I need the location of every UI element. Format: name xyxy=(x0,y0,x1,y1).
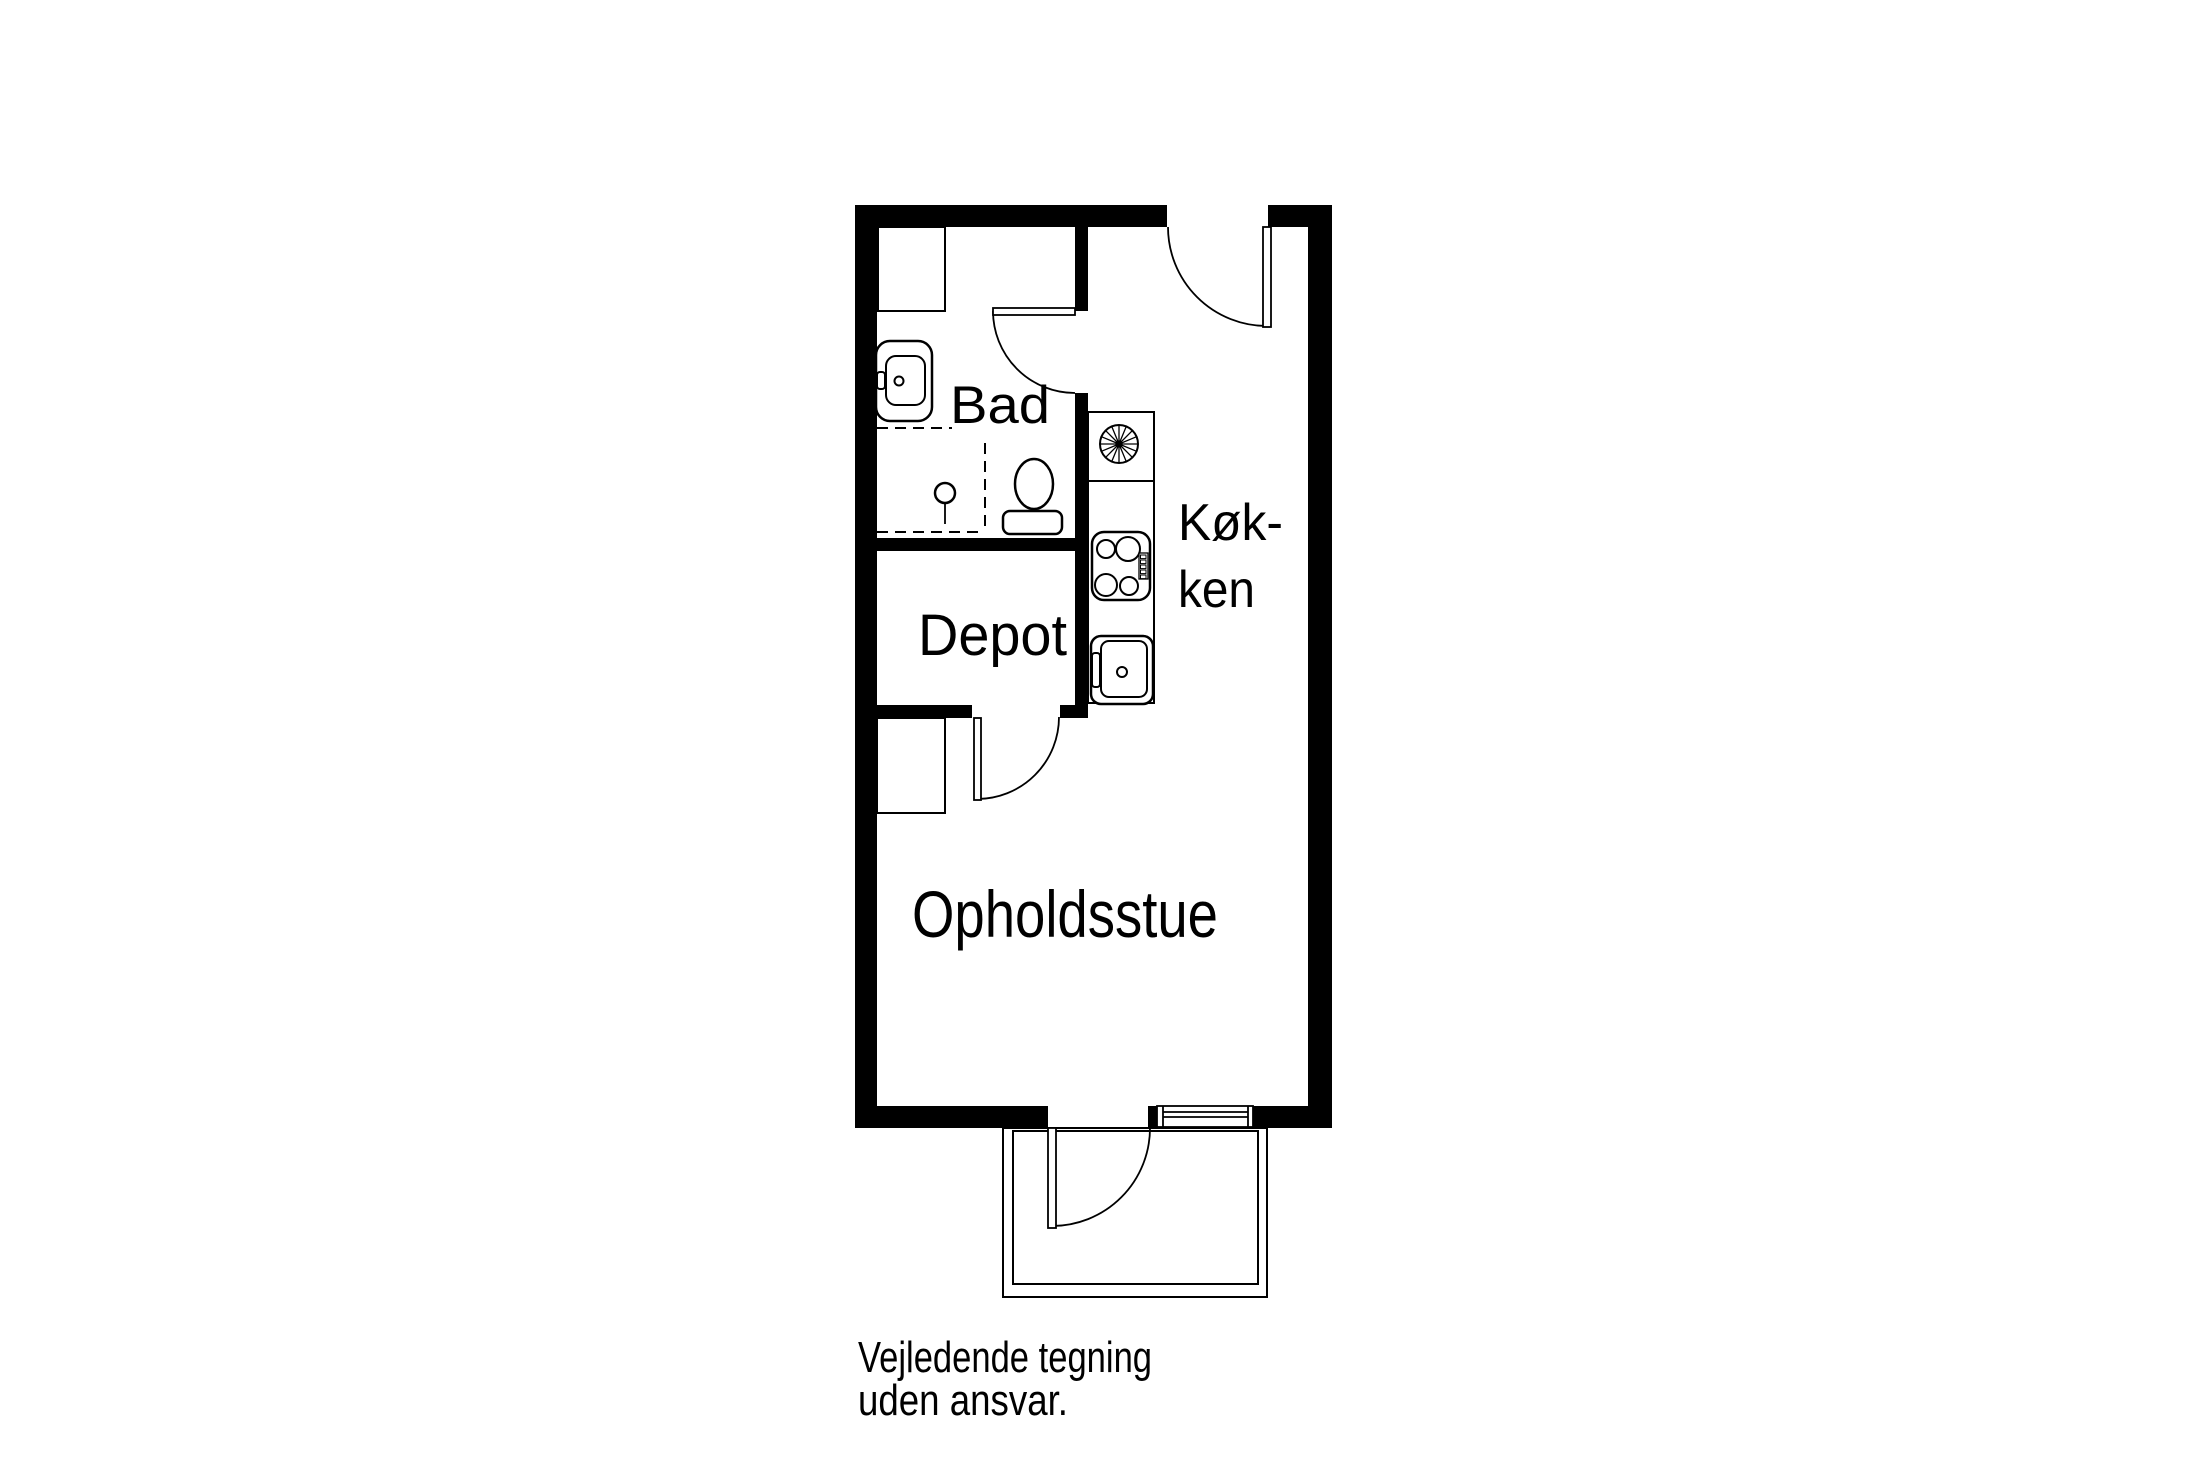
cooktop-knobs xyxy=(1141,555,1147,579)
bottom-wall-left-segment xyxy=(855,1106,1048,1128)
porch-door-swing-arc xyxy=(1052,1128,1150,1226)
bathroom-sink-drain xyxy=(895,377,904,386)
bathroom-bottom-wall xyxy=(877,538,1075,551)
cooktop-burner-4 xyxy=(1120,577,1138,595)
floor-plan: Bad Køk- ken Depot Opholdsstue Vejledend… xyxy=(0,0,2200,1466)
bathroom-sink-faucet xyxy=(877,372,885,389)
disclaimer-line2: uden ansvar. xyxy=(858,1376,1068,1425)
storage-bottom-wall-left xyxy=(877,705,972,718)
porch-door xyxy=(1048,1128,1150,1228)
bathroom-divider-upper xyxy=(1075,227,1088,311)
bathroom-cabinet xyxy=(878,227,945,311)
wardrobe xyxy=(877,718,945,813)
storage-label: Depot xyxy=(918,603,1067,668)
toilet xyxy=(1003,459,1062,534)
shower-head xyxy=(935,483,955,503)
kitchen-sink-drain xyxy=(1117,667,1127,677)
entry-door-leaf xyxy=(1263,227,1271,327)
hallway-door-swing-arc xyxy=(977,717,1059,799)
cooktop-burner-2 xyxy=(1116,537,1140,561)
hallway-door xyxy=(974,717,1059,800)
extractor-fan-center xyxy=(1117,442,1122,447)
living-room-label: Opholdsstue xyxy=(912,877,1218,951)
porch-outer-outline xyxy=(1003,1128,1267,1297)
kitchen-sink xyxy=(1091,636,1153,704)
entry-door-swing-arc xyxy=(1168,227,1267,326)
top-wall-left-segment xyxy=(855,205,1167,227)
cooktop-burner-3 xyxy=(1095,574,1117,596)
kitchen-sink-faucet xyxy=(1092,653,1100,687)
shower-area xyxy=(877,428,985,532)
bathroom-sink-basin xyxy=(886,356,925,405)
extractor-fan xyxy=(1100,425,1138,463)
entry-door xyxy=(1168,227,1271,327)
disclaimer-line1: Vejledende tegning xyxy=(858,1333,1152,1382)
window xyxy=(1157,1106,1253,1127)
storage-bottom-wall-right xyxy=(1060,705,1088,718)
hallway-door-leaf xyxy=(974,718,981,800)
bathroom-door-leaf xyxy=(993,308,1075,315)
kitchen-label-line1: Køk- xyxy=(1178,494,1283,552)
bathroom-label: Bad xyxy=(950,376,1050,435)
porch-door-leaf xyxy=(1048,1128,1056,1228)
disclaimer: Vejledende tegning uden ansvar. xyxy=(858,1333,1152,1425)
bottom-wall-right-segment xyxy=(1253,1106,1332,1128)
bathroom-kitchen-divider xyxy=(1075,393,1088,718)
toilet-tank xyxy=(1003,511,1062,534)
cooktop xyxy=(1092,532,1150,600)
right-wall xyxy=(1308,205,1332,1128)
kitchen-label-line2: ken xyxy=(1178,561,1255,619)
bathroom-sink xyxy=(876,341,932,421)
left-wall xyxy=(855,205,877,1128)
toilet-bowl xyxy=(1015,459,1053,509)
cooktop-burner-1 xyxy=(1097,540,1115,558)
floor-plan-drawing: Bad Køk- ken Depot Opholdsstue Vejledend… xyxy=(0,0,2200,1466)
entrance-porch xyxy=(1003,1128,1267,1297)
